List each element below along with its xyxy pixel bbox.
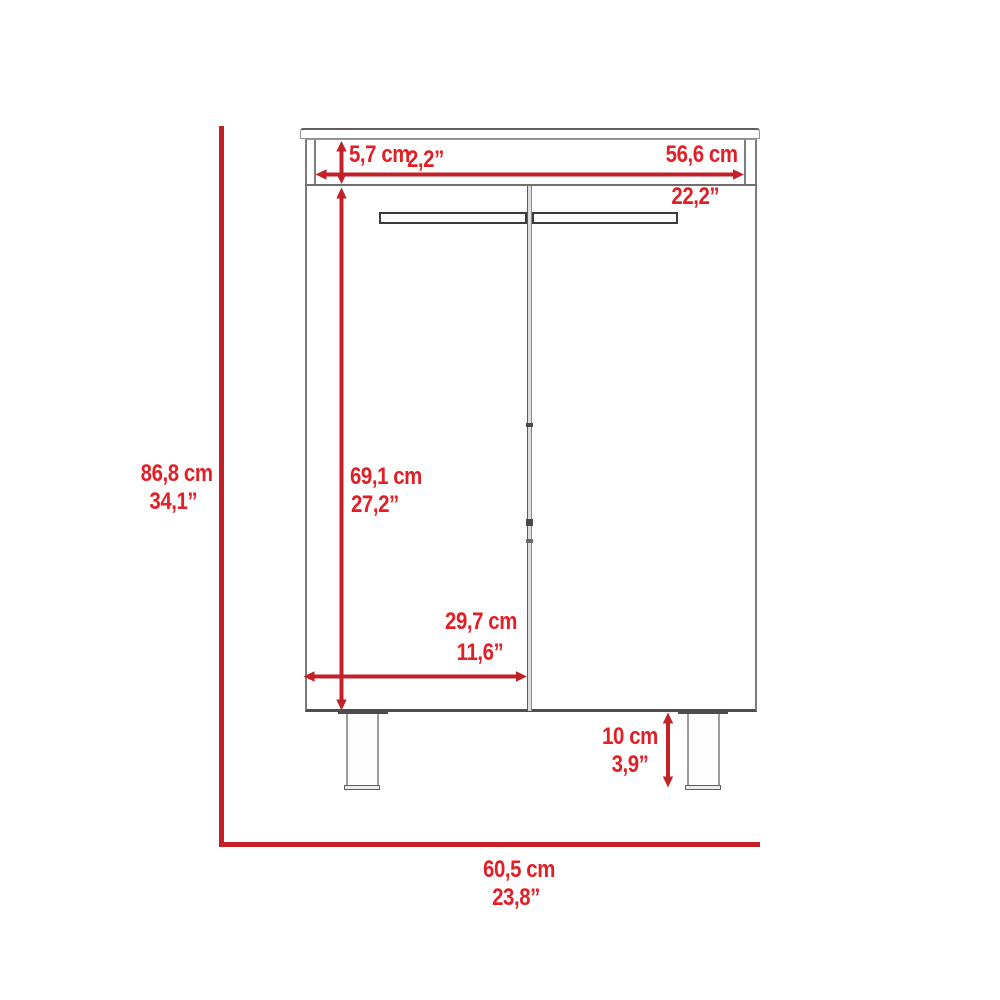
top-frame-height-in-label: 2,2” (407, 147, 444, 172)
door-height-arrow (336, 188, 346, 711)
door-width-in-label: 11,6” (395, 640, 565, 665)
dimension-diagram: 86,8 cm 34,1” 5,7 cm 2,2” 56,6 cm 22,2” … (0, 0, 1000, 1000)
overall-width-cm-label: 60,5 cm (434, 857, 604, 882)
top-frame-height-cm-label: 5,7 cm (349, 142, 410, 167)
door-height-in-label: 27,2” (351, 492, 399, 517)
overall-height-in-label: 34,1” (149, 489, 197, 514)
door-width-arrow (304, 671, 528, 682)
interior-width-cm-label: 56,6 cm (666, 142, 738, 167)
leg-height-cm-label: 10 cm (545, 724, 715, 749)
overall-height-cm-label: 86,8 cm (141, 461, 213, 486)
door-height-cm-label: 69,1 cm (350, 464, 422, 489)
interior-width-in-label: 22,2” (671, 184, 719, 209)
leg-height-in-label: 3,9” (545, 752, 715, 777)
interior-width-arrow (316, 169, 745, 179)
top-frame-height-arrow (336, 141, 346, 184)
overall-width-in-label: 23,8” (431, 885, 601, 910)
door-width-cm-label: 29,7 cm (396, 609, 566, 634)
